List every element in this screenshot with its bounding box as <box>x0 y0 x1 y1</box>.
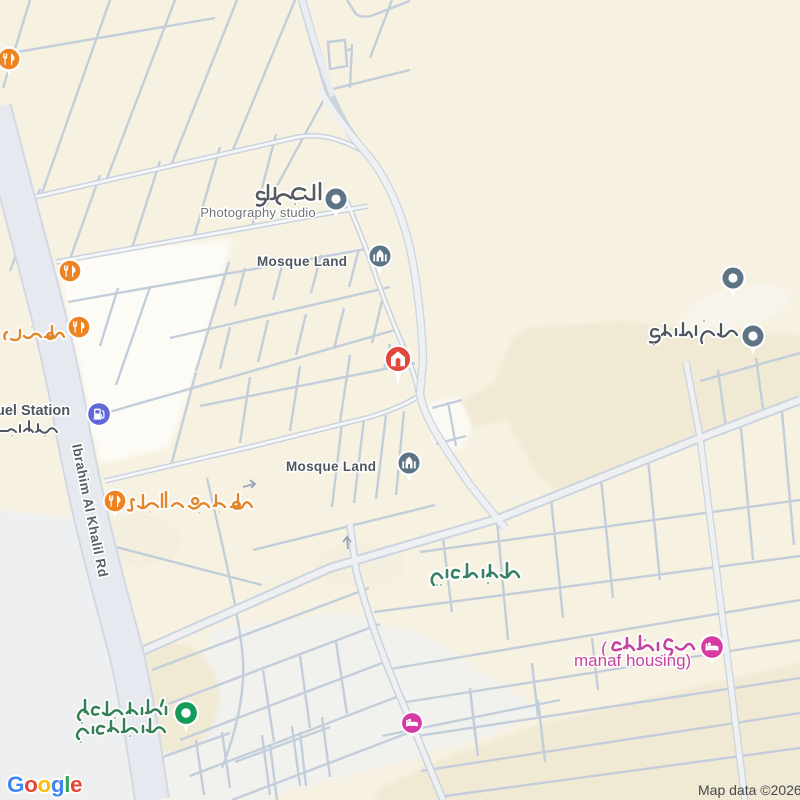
svg-text:Photography studio: Photography studio <box>200 205 316 220</box>
svg-text:Google: Google <box>7 772 82 797</box>
svg-text:manaf housing): manaf housing) <box>574 651 691 670</box>
svg-text:uel Station: uel Station <box>0 403 70 419</box>
svg-text:Mosque Land: Mosque Land <box>286 459 376 474</box>
svg-text:Mosque Land: Mosque Land <box>257 254 347 269</box>
svg-text:Map data ©2026: Map data ©2026 <box>698 782 800 798</box>
